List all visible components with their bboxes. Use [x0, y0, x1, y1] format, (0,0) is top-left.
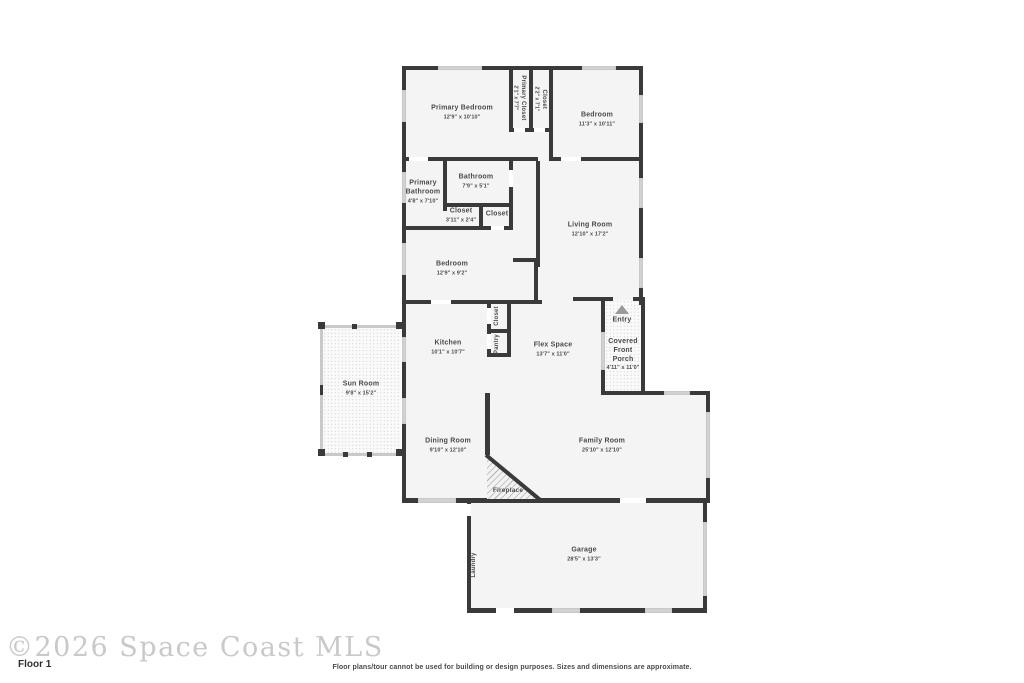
door-opening	[534, 128, 545, 132]
door-opening	[620, 498, 646, 503]
room-label-bathroom: Bathroom 7'9" x 5'1"	[459, 174, 494, 191]
wall	[485, 393, 490, 455]
room-name: Closet	[539, 87, 547, 112]
sunroom-frame	[322, 325, 401, 328]
wall	[549, 66, 553, 161]
room-label-flex-space: Flex Space 13'7" x 11'0"	[534, 342, 573, 359]
sunroom-frame	[322, 453, 401, 456]
disclaimer-text: Floor plans/tour cannot be used for buil…	[0, 664, 1024, 671]
entry-arrow-icon	[615, 305, 629, 314]
room-dims: 9'10" x 12'10"	[425, 447, 471, 454]
door-opening	[487, 308, 491, 324]
room-name: Entry	[613, 317, 632, 326]
room-dims: 3'11" x 2'4"	[446, 217, 476, 224]
room-name: Bedroom	[579, 112, 615, 121]
wall	[536, 161, 540, 267]
room-name: Primary Bedroom	[431, 105, 493, 114]
room-name: Laundry	[471, 552, 477, 577]
window	[639, 178, 643, 208]
window	[552, 608, 580, 613]
window	[402, 90, 406, 122]
room-name: Bathroom	[459, 174, 494, 183]
room-dims: 10'1" x 10'7"	[431, 349, 465, 356]
wall	[402, 300, 542, 304]
room-name: Primary Bathroom	[401, 179, 445, 197]
window	[418, 498, 456, 503]
room-dims: 12'9" x 9'2"	[436, 270, 468, 277]
window	[706, 412, 710, 478]
room-name: Covered Front Porch	[603, 338, 643, 364]
frame-post	[318, 322, 325, 329]
room-label-garage: Garage 28'5" x 13'3"	[567, 547, 601, 564]
room-name: Garage	[567, 547, 601, 556]
room-label-laundry: Laundry	[471, 552, 477, 577]
room-name: Closet	[486, 211, 509, 220]
door-opening	[514, 128, 525, 132]
room-label-primary-bathroom: Primary Bathroom 4'8" x 7'10"	[401, 179, 445, 204]
wall	[402, 226, 447, 230]
room-label-kitchen: Kitchen 10'1" x 10'7"	[431, 340, 465, 357]
room-label-entry: Entry	[613, 317, 632, 326]
room-label-closet-pantry: Closet	[494, 306, 500, 326]
room-label-primary-bedroom: Primary Bedroom 12'9" x 10'10"	[431, 105, 493, 122]
frame-post	[318, 449, 325, 456]
frame-post	[396, 322, 404, 329]
room-label-living-room: Living Room 12'10" x 17'2"	[568, 222, 613, 239]
frame-post	[320, 385, 323, 395]
floor-plan-page: Primary Bedroom 12'9" x 10'10" Primary C…	[0, 0, 1024, 683]
room-dims: 2'2" x 7'1"	[533, 87, 540, 112]
room-dims: 12'9" x 10'10"	[431, 114, 493, 121]
frame-post	[396, 449, 404, 456]
room-label-closet-hall: Closet 3'11" x 2'4"	[446, 208, 476, 225]
room-name: Kitchen	[431, 340, 465, 349]
door-opening	[467, 504, 471, 516]
frame-post	[367, 452, 372, 457]
window	[402, 243, 406, 275]
room-name: Family Room	[579, 438, 625, 447]
wall	[573, 297, 603, 301]
room-label-bedroom-front: Bedroom 11'3" x 10'11"	[579, 112, 615, 129]
window	[402, 337, 406, 362]
window	[402, 398, 406, 424]
room-name: Fireplace	[493, 487, 523, 495]
room-label-dining-room: Dining Room 9'10" x 12'10"	[425, 438, 471, 455]
room-dims: 7'9" x 5'1"	[459, 183, 494, 190]
window	[582, 66, 616, 70]
window	[664, 391, 690, 395]
room-name: Primary Closet	[518, 75, 526, 120]
wall	[479, 207, 483, 226]
door-opening	[487, 334, 491, 349]
window	[639, 258, 643, 288]
window	[645, 608, 672, 613]
frame-post	[343, 452, 348, 457]
wall	[534, 258, 538, 304]
room-label-covered-porch: Covered Front Porch 4'11" x 11'0"	[603, 338, 643, 372]
window	[639, 95, 643, 123]
room-name: Sun Room	[343, 381, 380, 390]
wall	[601, 300, 605, 332]
room-dims: 2'1" x 7'7"	[512, 75, 519, 120]
room-label-sun-room: Sun Room 9'8" x 15'2"	[343, 381, 380, 398]
door-opening	[431, 300, 451, 304]
mls-watermark: ©2026 Space Coast MLS	[6, 632, 384, 663]
room-label-closet-hall-2: Closet	[486, 211, 509, 220]
wall	[513, 258, 538, 262]
wall	[402, 66, 406, 502]
room-label-pantry: Pantry	[494, 334, 500, 354]
room-dims: 28'5" x 13'3"	[567, 556, 601, 563]
room-name: Closet	[494, 306, 500, 326]
wall	[443, 203, 513, 207]
room-label-fireplace: Fireplace	[493, 487, 523, 495]
room-label-bedroom-middle: Bedroom 12'9" x 9'2"	[436, 261, 468, 278]
door-opening	[409, 157, 428, 161]
window	[438, 66, 482, 70]
wall	[601, 391, 710, 395]
room-label-closet-top: Closet 2'2" x 7'1"	[533, 87, 547, 112]
room-dims: 9'8" x 15'2"	[343, 390, 380, 397]
room-label-primary-closet: Primary Closet 2'1" x 7'7"	[512, 75, 526, 120]
room-label-family-room: Family Room 25'10" x 12'10"	[579, 438, 625, 455]
room-name: Pantry	[494, 334, 500, 354]
room-name: Closet	[446, 208, 476, 217]
window	[703, 522, 707, 596]
door-opening	[491, 226, 504, 230]
wall	[487, 329, 511, 333]
room-name: Flex Space	[534, 342, 573, 351]
frame-post	[352, 324, 357, 329]
room-dims: 13'7" x 11'0"	[534, 351, 573, 358]
room-dims: 4'11" x 11'0"	[603, 365, 643, 372]
room-dims: 11'3" x 10'11"	[579, 121, 615, 128]
door-opening	[496, 608, 514, 613]
room-dims: 25'10" x 12'10"	[579, 447, 625, 454]
room-dims: 4'8" x 7'10"	[401, 198, 445, 205]
door-opening	[561, 157, 581, 161]
room-name: Dining Room	[425, 438, 471, 447]
room-dims: 12'10" x 17'2"	[568, 231, 613, 238]
door-opening	[509, 170, 513, 187]
room-name: Bedroom	[436, 261, 468, 270]
room-name: Living Room	[568, 222, 613, 231]
